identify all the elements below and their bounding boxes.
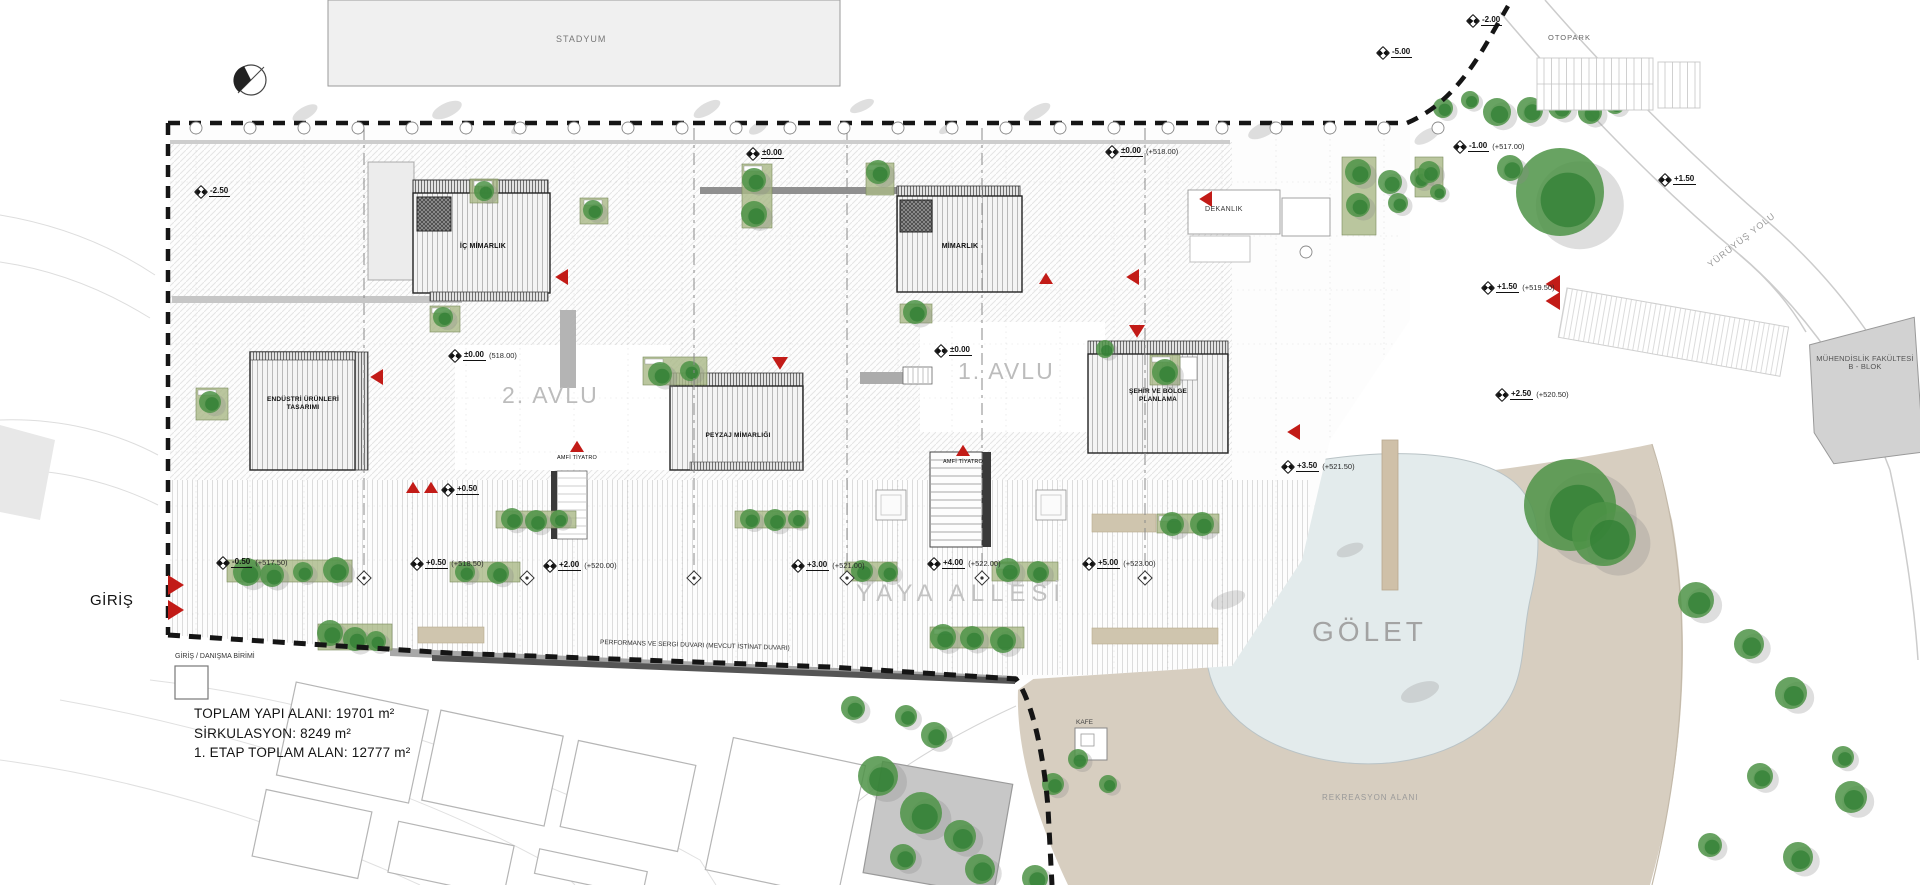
label-yaya-allesi: YAYA ALLESİ bbox=[856, 580, 1066, 608]
benchmark-icon bbox=[543, 558, 557, 572]
elevation-marker: ±0.00(+518.00) bbox=[1107, 146, 1178, 157]
label-amfi-2: AMFİ TİYATRO bbox=[933, 458, 993, 466]
elevation-value: -5.00 bbox=[1391, 47, 1412, 58]
elevation-datum: (+520.50) bbox=[1536, 390, 1568, 399]
ramp-to-muhendislik bbox=[1558, 288, 1788, 376]
elevation-datum: (+517.00) bbox=[1492, 142, 1524, 151]
label-avlu2: 2. AVLU bbox=[502, 382, 599, 409]
red-triangle-marker bbox=[1546, 292, 1560, 310]
stadium-label: STADYUM bbox=[556, 34, 606, 44]
tree bbox=[921, 722, 953, 752]
benchmark-icon bbox=[1453, 139, 1467, 153]
grid-bubble bbox=[1216, 122, 1228, 134]
elevation-datum: (518.00) bbox=[489, 351, 517, 360]
tree bbox=[1832, 746, 1859, 771]
label-peyzaj: PEYZAJ MİMARLIĞI bbox=[688, 432, 788, 440]
parking-stalls bbox=[1537, 58, 1700, 110]
elevation-value: +4.00 bbox=[942, 558, 965, 569]
building-peyzaj bbox=[670, 373, 803, 470]
label-kafe: KAFE bbox=[1076, 719, 1093, 726]
grid-bubble bbox=[1378, 122, 1390, 134]
site-plan: STADYUM GİRİŞ GİRİŞ / DANIŞMA BİRİMİ TOP… bbox=[0, 0, 1920, 885]
grid-bubble bbox=[676, 122, 688, 134]
elevation-marker: ±0.00(518.00) bbox=[450, 350, 517, 361]
benchmark-icon bbox=[934, 343, 948, 357]
tree bbox=[1835, 781, 1874, 818]
road-patch-left bbox=[0, 425, 55, 520]
elevation-value: +0.50 bbox=[425, 558, 448, 569]
tree bbox=[895, 705, 922, 730]
elevation-marker: -0.50(+517.50) bbox=[218, 557, 288, 568]
label-amfi-1: AMFİ TİYATRO bbox=[547, 454, 607, 462]
entrance-info-unit bbox=[175, 666, 208, 699]
grid-bubble bbox=[1270, 122, 1282, 134]
elevation-value: +3.50 bbox=[1296, 461, 1319, 472]
grid-bubble bbox=[946, 122, 958, 134]
grid-bubble bbox=[190, 122, 202, 134]
tree bbox=[1783, 842, 1820, 877]
benchmark-icon bbox=[1495, 387, 1509, 401]
elevation-value: -1.00 bbox=[1468, 141, 1489, 152]
elevation-marker: +5.00(+523.00) bbox=[1084, 558, 1156, 569]
grid-bubble bbox=[1432, 122, 1444, 134]
elevation-marker: -5.00 bbox=[1378, 47, 1412, 58]
elevation-marker: ±0.00 bbox=[936, 345, 972, 356]
elevation-value: -2.00 bbox=[1481, 15, 1502, 26]
benchmark-icon bbox=[448, 348, 462, 362]
grid-bubble bbox=[1162, 122, 1174, 134]
tree-shadow bbox=[848, 96, 876, 116]
grid-bubble bbox=[352, 122, 364, 134]
elevation-marker: +2.00(+520.00) bbox=[545, 560, 617, 571]
tree bbox=[1734, 629, 1771, 664]
elevation-datum: (+521.00) bbox=[832, 561, 864, 570]
label-golet: GÖLET bbox=[1312, 616, 1427, 648]
paved-planter bbox=[1092, 514, 1156, 532]
elevation-value: +1.50 bbox=[1673, 174, 1696, 185]
elevation-datum: (+520.00) bbox=[584, 561, 616, 570]
benchmark-icon bbox=[1376, 45, 1390, 59]
elevation-marker: ±0.00 bbox=[748, 148, 784, 159]
grid-bubble bbox=[1000, 122, 1012, 134]
elevation-marker: +1.50 bbox=[1660, 174, 1696, 185]
elevation-value: -0.50 bbox=[231, 557, 252, 568]
elevation-datum: (+517.50) bbox=[255, 558, 287, 567]
elevation-marker: +0.50(+518.50) bbox=[412, 558, 484, 569]
grid-bubble bbox=[622, 122, 634, 134]
grid-bubble bbox=[1108, 122, 1120, 134]
elevation-marker: -2.50 bbox=[196, 186, 230, 197]
tree bbox=[1497, 155, 1529, 185]
grid-bubble bbox=[892, 122, 904, 134]
paved-planter bbox=[1092, 628, 1218, 644]
elevation-datum: (+521.50) bbox=[1322, 462, 1354, 471]
elevation-value: +0.50 bbox=[456, 484, 479, 495]
benchmark-icon bbox=[1466, 13, 1480, 27]
grid-bubble bbox=[460, 122, 472, 134]
tree bbox=[1461, 91, 1483, 112]
elevation-marker: +3.50(+521.50) bbox=[1283, 461, 1355, 472]
grid-bubble bbox=[244, 122, 256, 134]
grid-bubble bbox=[838, 122, 850, 134]
benchmark-icon bbox=[1481, 280, 1495, 294]
benchmark-icon bbox=[194, 184, 208, 198]
elevation-datum: (+519.50) bbox=[1522, 283, 1554, 292]
benchmark-icon bbox=[1082, 556, 1096, 570]
label-endustri: ENDÜSTRİ ÜRÜNLERİ TASARIMI bbox=[252, 396, 354, 412]
label-mimarlik: MİMARLIK bbox=[915, 243, 1005, 251]
elevation-datum: (+522.00) bbox=[968, 559, 1000, 568]
stat-phase1-area: 1. ETAP TOPLAM ALAN: 12777 m² bbox=[194, 743, 410, 763]
elevation-value: ±0.00 bbox=[949, 345, 972, 356]
tree bbox=[1678, 582, 1722, 623]
grid-bubble bbox=[784, 122, 796, 134]
tree bbox=[841, 696, 870, 724]
grid-bubble bbox=[514, 122, 526, 134]
elevation-datum: (+518.50) bbox=[451, 559, 483, 568]
tree bbox=[1698, 833, 1727, 861]
grid-bubble bbox=[1324, 122, 1336, 134]
elevation-value: +3.00 bbox=[806, 560, 829, 571]
paved-planter bbox=[418, 627, 484, 643]
tree bbox=[1775, 677, 1814, 714]
tree bbox=[1430, 184, 1450, 202]
elevation-marker: -2.00 bbox=[1468, 15, 1502, 26]
elevation-marker: -1.00(+517.00) bbox=[1455, 141, 1525, 152]
grid-bubble bbox=[568, 122, 580, 134]
tree-shadow bbox=[430, 97, 465, 123]
elevation-value: ±0.00 bbox=[1120, 146, 1143, 157]
benchmark-icon bbox=[410, 556, 424, 570]
benchmark-icon bbox=[1658, 172, 1672, 186]
elevation-value: +2.50 bbox=[1510, 389, 1533, 400]
elevation-marker: +2.50(+520.50) bbox=[1497, 389, 1569, 400]
elevation-value: -2.50 bbox=[209, 186, 230, 197]
label-rekreasyon: REKREASYON ALANI bbox=[1322, 793, 1418, 802]
tree-shadow bbox=[691, 96, 723, 121]
elevation-marker: +4.00(+522.00) bbox=[929, 558, 1001, 569]
elevation-marker: +3.00(+521.00) bbox=[793, 560, 865, 571]
label-sehir: ŞEHİR VE BÖLGE PLANLAMA bbox=[1098, 388, 1218, 404]
elevation-value: +2.00 bbox=[558, 560, 581, 571]
building-muhendislik bbox=[1808, 317, 1920, 464]
area-statistics: TOPLAM YAPI ALANI: 19701 m² SİRKULASYON:… bbox=[194, 704, 410, 763]
entrance-label: GİRİŞ bbox=[90, 592, 133, 609]
label-ic-mimarlik: İÇ MİMARLIK bbox=[438, 243, 528, 251]
benchmark-icon bbox=[441, 482, 455, 496]
elevation-marker: +0.50 bbox=[443, 484, 479, 495]
benchmark-icon bbox=[927, 556, 941, 570]
stat-total-built-area: TOPLAM YAPI ALANI: 19701 m² bbox=[194, 704, 410, 724]
stat-circulation: SİRKULASYON: 8249 m² bbox=[194, 724, 410, 744]
grid-bubble bbox=[1054, 122, 1066, 134]
elevation-value: +5.00 bbox=[1097, 558, 1120, 569]
elevation-marker: +1.50(+519.50) bbox=[1483, 282, 1555, 293]
grid-bubble bbox=[298, 122, 310, 134]
tree bbox=[1747, 763, 1779, 793]
north-arrow-icon bbox=[233, 65, 266, 95]
grid-bubble bbox=[406, 122, 418, 134]
label-otopark: OTOPARK bbox=[1548, 33, 1591, 42]
benchmark-icon bbox=[1281, 459, 1295, 473]
entrance-unit-label: GİRİŞ / DANIŞMA BİRİMİ bbox=[175, 653, 255, 660]
elevation-datum: (+523.00) bbox=[1123, 559, 1155, 568]
elevation-value: +1.50 bbox=[1496, 282, 1519, 293]
pond-pier bbox=[1382, 440, 1398, 590]
tree bbox=[1516, 148, 1624, 249]
building-ic-mimarlik bbox=[368, 162, 550, 301]
label-avlu1: 1. AVLU bbox=[958, 358, 1055, 385]
elevation-datum: (+518.00) bbox=[1146, 147, 1178, 156]
label-muhendislik: MÜHENDİSLİK FAKÜLTESİ B - BLOK bbox=[1800, 355, 1920, 371]
tree bbox=[1433, 98, 1458, 121]
benchmark-icon bbox=[1105, 144, 1119, 158]
benchmark-icon bbox=[216, 555, 230, 569]
benchmark-icon bbox=[791, 558, 805, 572]
tree bbox=[1483, 98, 1517, 130]
building-mimarlik bbox=[897, 186, 1022, 292]
elevation-value: ±0.00 bbox=[463, 350, 486, 361]
elevation-value: ±0.00 bbox=[761, 148, 784, 159]
benchmark-icon bbox=[746, 146, 760, 160]
label-dekanlik: DEKANLIK bbox=[1205, 206, 1243, 213]
grid-bubble bbox=[730, 122, 742, 134]
